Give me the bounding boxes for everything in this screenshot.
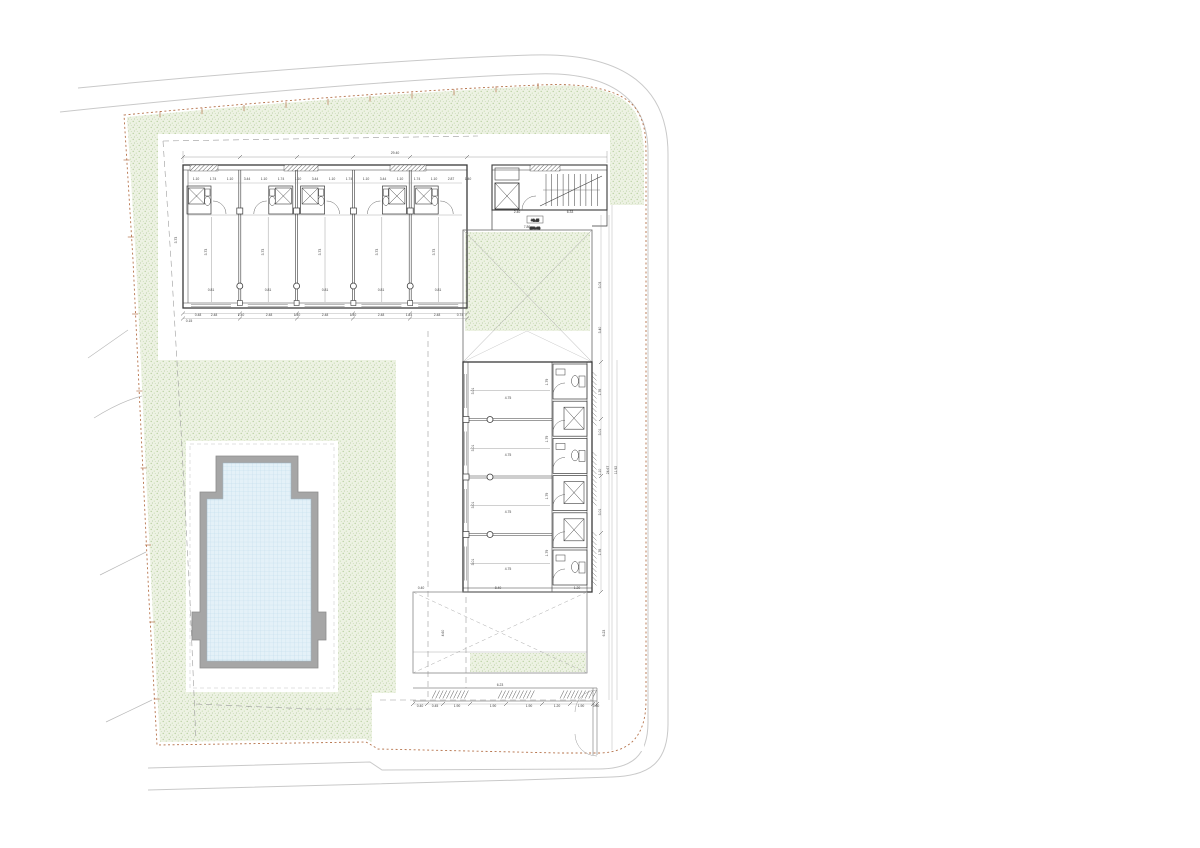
- dimension-label: 1.74: [278, 177, 285, 181]
- dimension-label: 3.01: [471, 502, 475, 509]
- dimension-label: 1.90: [578, 704, 585, 708]
- dimension-label: 6.33: [567, 210, 574, 214]
- dimension-label: 6.23: [497, 683, 504, 687]
- column: [487, 417, 493, 423]
- level-marker-value: +0.45: [531, 219, 539, 223]
- north-wall-hatch: [390, 165, 426, 171]
- dimension-label: 1.40: [294, 313, 301, 317]
- column: [237, 283, 243, 289]
- driveway-area: [372, 693, 610, 752]
- dimension-label: 1.40: [465, 177, 472, 181]
- column: [487, 532, 493, 538]
- dimension-label: 3.73: [318, 249, 322, 256]
- dimension-label: 1.76: [598, 389, 602, 396]
- site-plan-drawing: +0.45 (159.48): [0, 0, 1200, 848]
- level-marker-elevation: (159.48): [530, 226, 540, 230]
- dimension-label: 1.90: [454, 704, 461, 708]
- dimension-label: 2.48: [266, 313, 273, 317]
- dimension-label: 3.40: [598, 327, 602, 334]
- dimension-label: 3.73: [375, 249, 379, 256]
- dimension-label: 3.03: [598, 282, 602, 289]
- dimension-label: 1.20: [554, 704, 561, 708]
- column: [237, 208, 243, 214]
- dimension-label: 29.40: [391, 151, 400, 155]
- dimension-label: 1.20: [574, 586, 581, 590]
- dimension-label: 0.40: [593, 704, 600, 708]
- dimension-label: 3.01: [471, 388, 475, 395]
- dimension-label: 2.87: [448, 177, 455, 181]
- courtyard-lawn: [465, 232, 590, 331]
- dimension-label: 8.40: [495, 586, 502, 590]
- dimension-label: 3.73: [174, 237, 178, 244]
- dimension-label: 1.10: [227, 177, 234, 181]
- dimension-label: 3.01: [471, 559, 475, 566]
- dimension-label: 0.74: [457, 313, 464, 317]
- dimension-label: 4.60: [441, 630, 445, 637]
- dimension-label: 1.10: [295, 177, 302, 181]
- dimension-label: 1.10: [598, 469, 602, 476]
- dimension-label: 3.73: [261, 249, 265, 256]
- dimension-label: 1.10: [261, 177, 268, 181]
- dimension-label: 1.10: [431, 177, 438, 181]
- dimension-label: 0.40: [418, 586, 425, 590]
- dimension-label: 4.75: [505, 567, 512, 571]
- dimension-label: 1.10: [397, 177, 404, 181]
- dimension-label: 1.40: [350, 313, 357, 317]
- dimension-label: 1.74: [414, 177, 421, 181]
- dimension-label: 1.90: [526, 704, 533, 708]
- dimension-label: 0.15: [186, 319, 193, 323]
- dimension-label: 3.44: [244, 177, 251, 181]
- dimension-label: 4.75: [505, 510, 512, 514]
- dimension-label: 3.73: [204, 249, 208, 256]
- column: [463, 532, 469, 538]
- dimension-label: 0.48: [195, 313, 202, 317]
- north-wall-hatch: [284, 165, 318, 171]
- dimension-label: 24.67: [606, 466, 610, 475]
- dimension-label: 2.48: [211, 313, 218, 317]
- dimension-label: 1.10: [193, 177, 200, 181]
- north-wall-hatch: [190, 165, 218, 171]
- dimension-label: 1.14: [406, 313, 413, 317]
- dimension-label: 11.92: [614, 466, 618, 474]
- dimension-label: 1.76: [598, 549, 602, 556]
- column: [487, 474, 493, 480]
- dimension-label: 1.10: [363, 177, 370, 181]
- column: [407, 208, 413, 214]
- dimension-label: 3.01: [598, 429, 602, 436]
- column: [294, 208, 300, 214]
- dimension-label: 1.79: [545, 436, 549, 443]
- dimension-label: 2.48: [322, 313, 329, 317]
- dimension-label: 1.74: [210, 177, 217, 181]
- dimension-label: 0.81: [378, 288, 385, 292]
- dimension-label: 0.81: [208, 288, 215, 292]
- dimension-label: 1.79: [545, 550, 549, 557]
- column: [237, 301, 242, 306]
- plan-page: +0.45 (159.48): [0, 0, 1200, 848]
- dimension-label: 2.48: [434, 313, 441, 317]
- column: [408, 301, 413, 306]
- dimension-label: 3.44: [312, 177, 319, 181]
- column: [463, 417, 469, 423]
- dimension-label: 0.81: [435, 288, 442, 292]
- dimension-label: 0.81: [265, 288, 272, 292]
- dimension-label: 2.48: [378, 313, 385, 317]
- dimension-label: 3.44: [380, 177, 387, 181]
- dimension-label: 2.40: [514, 210, 521, 214]
- column: [351, 301, 356, 306]
- north-wall-hatch: [530, 165, 560, 171]
- dimension-label: 1.79: [545, 493, 549, 500]
- terrace-lawn-strip: [470, 653, 586, 672]
- dimension-label: 6.23: [602, 630, 606, 637]
- dimension-label: 0.81: [322, 288, 329, 292]
- dimension-label: 1.79: [545, 379, 549, 386]
- dimension-label: 4.75: [505, 453, 512, 457]
- column: [463, 474, 469, 480]
- column: [350, 283, 356, 289]
- dimension-label: 3.01: [471, 445, 475, 452]
- dimension-label: 1.10: [329, 177, 336, 181]
- dimension-label: 1.74: [346, 177, 353, 181]
- dimension-label: 1.40: [238, 313, 245, 317]
- dimension-label: 4.75: [505, 396, 512, 400]
- column: [294, 283, 300, 289]
- paved-strip-east: [610, 205, 644, 751]
- dimension-label: 3.01: [598, 509, 602, 516]
- dimension-label: 3.73: [432, 249, 436, 256]
- column: [407, 283, 413, 289]
- column: [294, 301, 299, 306]
- dimension-label: 0.40: [417, 704, 424, 708]
- column: [350, 208, 356, 214]
- dimension-label: 1.90: [490, 704, 497, 708]
- dimension-label: 7.86: [524, 225, 531, 229]
- dimension-label: 0.45: [432, 704, 439, 708]
